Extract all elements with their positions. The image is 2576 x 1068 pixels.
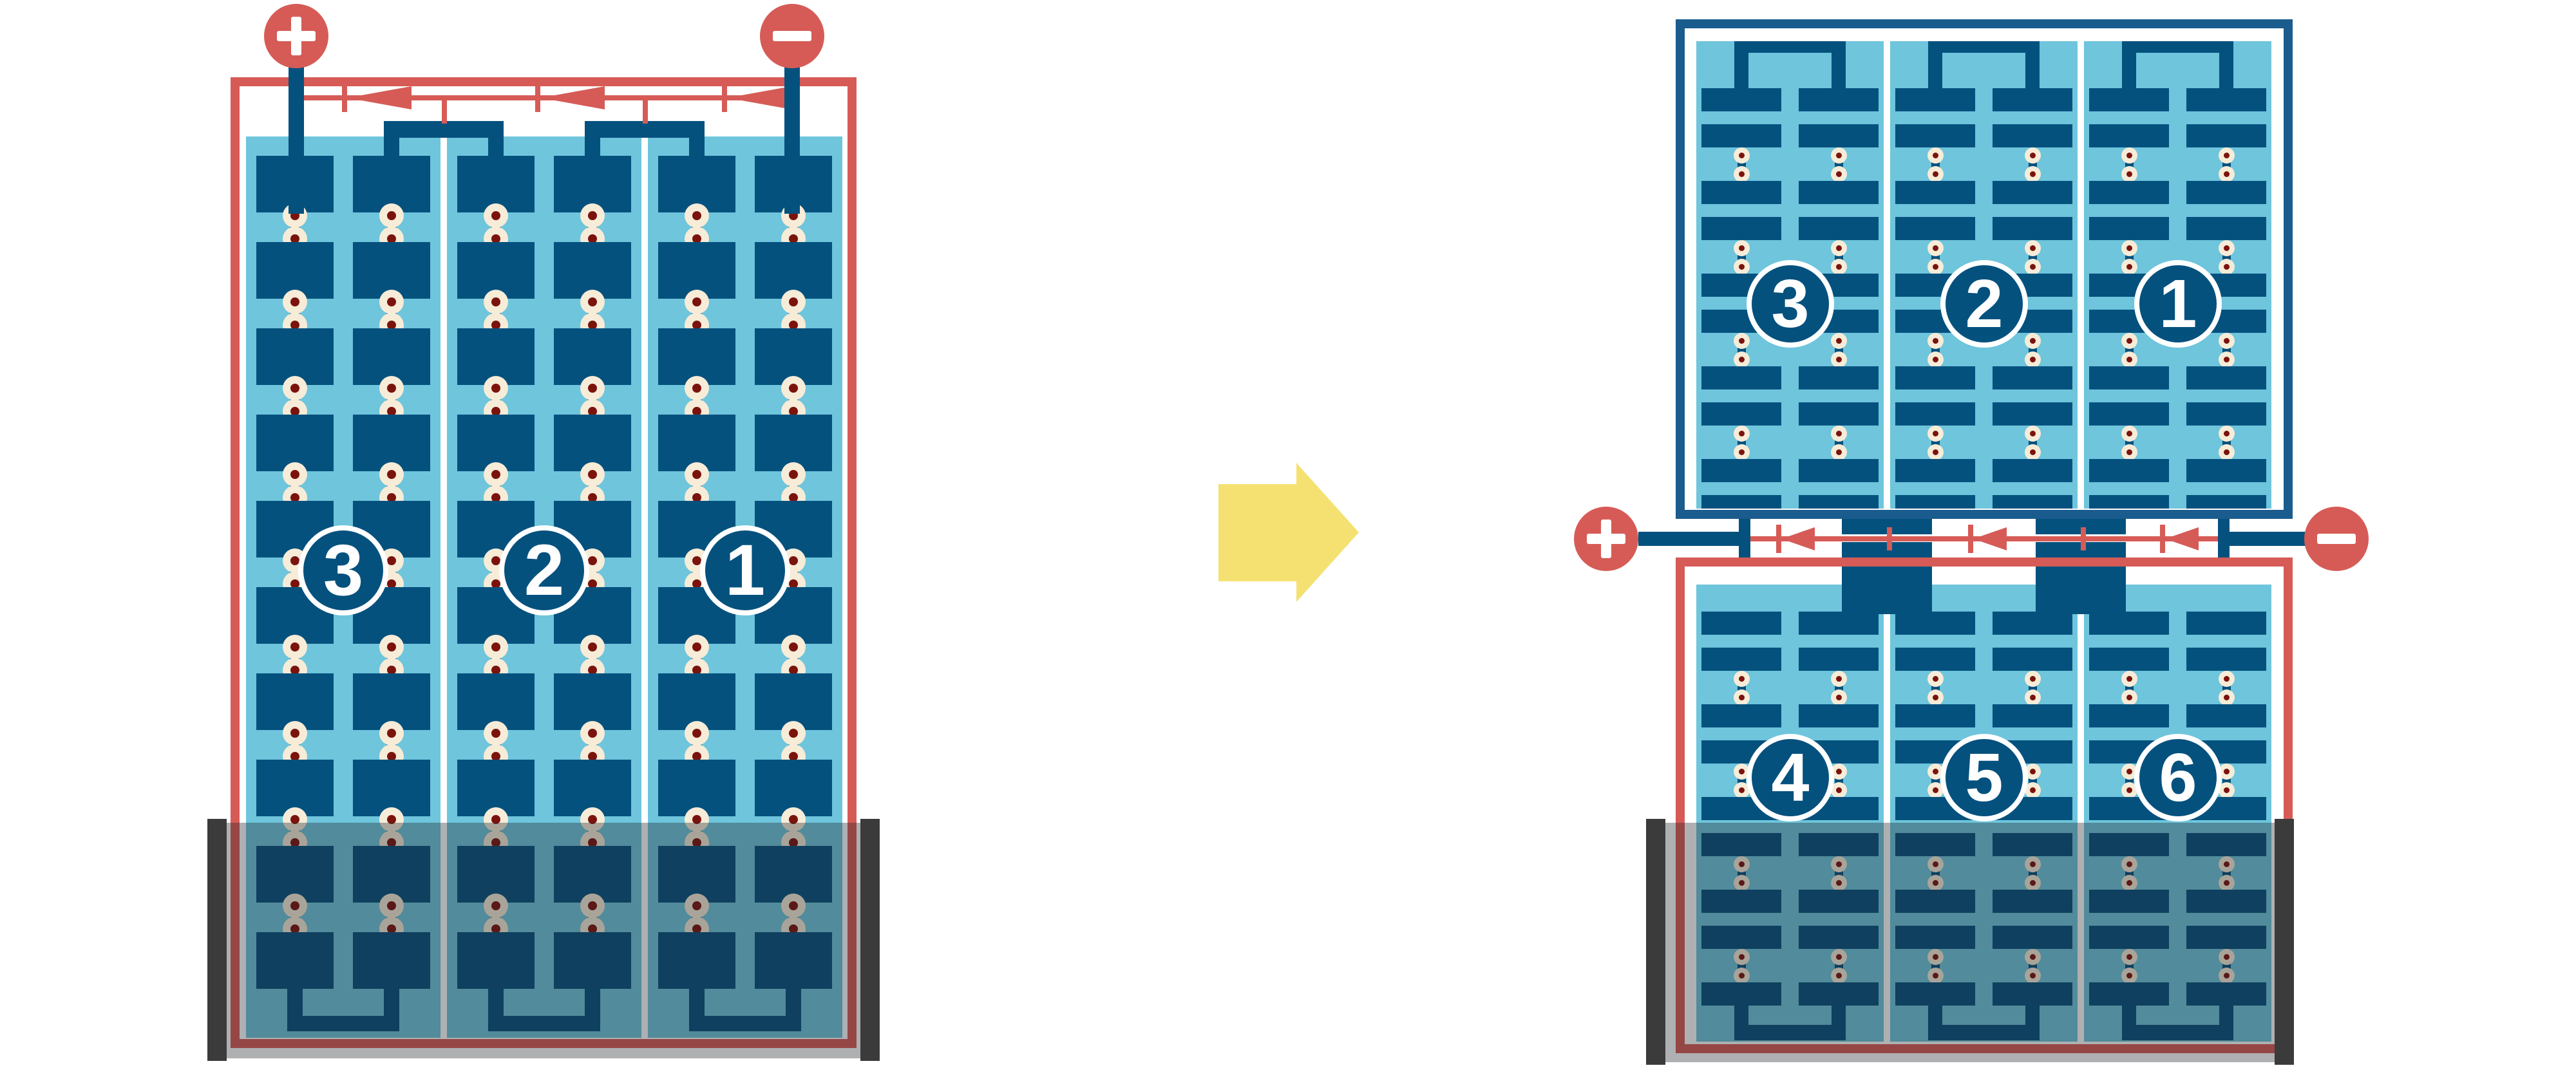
solar-half-cell (1895, 217, 1975, 240)
solder-dot-core (1739, 431, 1745, 436)
minus-terminal-icon (2304, 507, 2369, 571)
solder-dot-core (2224, 171, 2230, 177)
solder-dot (2219, 259, 2235, 275)
diode-icon (2165, 527, 2199, 550)
solder-dot (379, 462, 404, 487)
solder-dot-core (789, 297, 798, 306)
solar-half-cell (1993, 402, 2072, 426)
solar-half-cell (1701, 459, 1781, 482)
solder-dot (580, 203, 605, 228)
solder-dot (1734, 689, 1750, 706)
diode-icon (1781, 527, 1815, 550)
solder-dot-core (1836, 769, 1842, 774)
solar-module-wiring-diagram: 3 2 1 3 2 1 4 5 6 (0, 0, 2576, 1068)
solar-half-cell (1993, 459, 2072, 482)
solder-dot (781, 635, 806, 659)
solar-half-cell (1701, 612, 1781, 635)
solder-dot-core (1933, 264, 1938, 270)
solder-dot-core (1933, 449, 1938, 455)
solder-dot-core (789, 384, 798, 393)
solder-dot (2025, 240, 2041, 256)
solar-half-cell (1895, 704, 1975, 727)
string-bridge-leg (585, 138, 600, 171)
solder-dot-core (1836, 245, 1842, 251)
solar-half-cell (2186, 402, 2266, 426)
solar-half-cell (2186, 459, 2266, 482)
solder-dot (2121, 351, 2137, 368)
string-return-leg (1928, 52, 1942, 91)
solder-dot (781, 290, 806, 314)
solder-dot-core (2126, 695, 2132, 700)
solder-dot (2025, 166, 2041, 182)
solder-dot (1734, 240, 1750, 256)
solder-dot-core (2224, 338, 2230, 344)
solder-dot (2025, 351, 2041, 368)
solder-dot-core (2126, 153, 2132, 158)
string-number-badge: 2 (1940, 260, 2028, 348)
solar-half-cell (2186, 495, 2266, 509)
solar-half-cell (2089, 124, 2169, 147)
solder-dot (1927, 333, 1944, 349)
solder-dot (685, 635, 709, 659)
solder-dot-core (1836, 357, 1842, 362)
solar-half-cell (1993, 495, 2072, 509)
solder-dot-core (1933, 787, 1938, 793)
solder-dot-core (290, 470, 299, 479)
solar-half-cell (2186, 648, 2266, 671)
solder-dot-core (2126, 357, 2132, 362)
plus-terminal-icon (1574, 507, 1638, 571)
solder-dot (1734, 351, 1750, 368)
solder-dot-core (2224, 695, 2230, 700)
solder-dot-core (2126, 449, 2132, 455)
solder-dot-core (1933, 357, 1938, 362)
solder-dot-core (2030, 264, 2036, 270)
solder-dot (2121, 147, 2137, 164)
solder-dot (379, 203, 404, 228)
string-return-leg (2219, 52, 2233, 91)
solder-dot (484, 721, 508, 745)
solder-dot (2121, 426, 2137, 442)
solder-dot (1831, 426, 1847, 442)
solar-half-cell (1993, 88, 2072, 111)
solder-dot-core (1933, 245, 1938, 251)
solder-dot (1734, 444, 1750, 460)
solder-dot (2219, 147, 2235, 164)
diode-icon (1973, 527, 2007, 550)
solder-dot-core (387, 384, 396, 393)
solder-dot-core (2030, 338, 2036, 344)
solder-dot-core (2126, 769, 2132, 774)
solar-half-cell (1895, 88, 1975, 111)
solder-dot (2121, 333, 2137, 349)
solder-dot (484, 635, 508, 659)
shade-overlay (1665, 823, 2275, 1062)
solar-half-cell (2186, 612, 2266, 635)
solder-dot-core (1836, 449, 1842, 455)
solder-dot-core (2030, 695, 2036, 700)
solder-dot-core (692, 297, 701, 306)
solder-dot (2219, 240, 2235, 256)
solar-half-cell (2089, 704, 2169, 727)
solder-dot-core (2224, 769, 2230, 774)
solar-half-cell (1701, 217, 1781, 240)
solder-dot-core (2126, 245, 2132, 251)
solar-half-cell (1799, 217, 1879, 240)
solar-half-cell (1701, 648, 1781, 671)
solder-dot-core (1836, 787, 1842, 793)
solder-dot (1831, 689, 1847, 706)
solder-dot-core (2030, 676, 2036, 682)
solder-dot (781, 721, 806, 745)
solder-dot-core (2126, 787, 2132, 793)
shade-overlay (227, 823, 860, 1058)
solder-dot-core (2224, 676, 2230, 682)
solder-dot-core (387, 729, 396, 738)
negative-terminal-wire (784, 62, 800, 214)
solar-half-cell (1799, 181, 1879, 204)
diode-cathode-bar (342, 84, 347, 112)
solar-half-cell (1895, 181, 1975, 204)
solder-dot-core (1739, 449, 1745, 455)
solder-dot-core (2030, 769, 2036, 774)
solar-half-cell (2186, 217, 2266, 240)
solder-dot-core (2126, 338, 2132, 344)
solder-dot (1734, 333, 1750, 349)
solder-dot-core (588, 470, 597, 479)
solder-dot (2121, 444, 2137, 460)
solder-dot-core (1933, 338, 1938, 344)
solar-half-cell (2089, 366, 2169, 389)
solder-dot (685, 290, 709, 314)
solar-half-cell (2186, 366, 2266, 389)
right-arrow-icon (1296, 463, 1359, 602)
solar-half-cell (1701, 181, 1781, 204)
solder-dot (484, 290, 508, 314)
string-tab-leg (1842, 567, 1932, 614)
plus-sign-bar (291, 17, 301, 55)
solar-half-cell (1799, 88, 1879, 111)
solder-dot (580, 462, 605, 487)
solder-dot (1831, 147, 1847, 164)
solder-dot-core (2224, 787, 2230, 793)
solder-dot-core (2224, 449, 2230, 455)
solder-dot-core (1933, 171, 1938, 177)
diode-cathode-bar (2160, 525, 2165, 553)
solder-dot-core (789, 642, 798, 651)
minus-terminal-icon (760, 4, 824, 68)
solar-half-cell (1993, 124, 2072, 147)
plus-terminal-icon (264, 4, 328, 68)
solder-dot-core (1739, 245, 1745, 251)
solder-dot-core (2030, 153, 2036, 158)
solder-dot (379, 721, 404, 745)
solder-dot-core (1739, 357, 1745, 362)
solder-dot (2121, 689, 2137, 706)
solar-half-cell (1701, 402, 1781, 426)
solar-half-cell (1895, 648, 1975, 671)
solder-dot-core (1739, 676, 1745, 682)
solar-half-cell (2089, 495, 2169, 509)
solder-dot (2025, 689, 2041, 706)
solder-dot-core (491, 384, 500, 393)
solder-dot (283, 635, 307, 659)
solder-dot (2121, 671, 2137, 687)
solder-dot (2219, 444, 2235, 460)
solder-dot (379, 635, 404, 659)
solder-dot (379, 376, 404, 400)
solder-dot-core (1836, 676, 1842, 682)
string-return-bar (2122, 41, 2233, 53)
solar-half-cell (1993, 648, 2072, 671)
solder-dot (379, 290, 404, 314)
string-number-badge: 1 (700, 525, 790, 615)
solder-dot (1831, 351, 1847, 368)
solar-half-cell (2089, 459, 2169, 482)
shade-edge-bar (1646, 819, 1665, 1065)
solar-half-cell (1993, 181, 2072, 204)
solder-dot-core (387, 211, 396, 220)
solder-dot-core (290, 297, 299, 306)
string-return-bar (1734, 41, 1846, 53)
diode-cathode-bar (535, 84, 540, 112)
solar-half-cell (1993, 704, 2072, 727)
solder-dot (580, 635, 605, 659)
solder-dot-core (1836, 338, 1842, 344)
diode-cathode-bar (1968, 525, 1973, 553)
solder-dot-core (2030, 171, 2036, 177)
solder-dot (685, 376, 709, 400)
minus-sign-bar (773, 31, 811, 41)
solar-half-cell (2089, 402, 2169, 426)
solder-dot-core (692, 384, 701, 393)
solder-dot (1927, 351, 1944, 368)
solder-dot-core (588, 297, 597, 306)
solder-dot-core (789, 729, 798, 738)
plus-sign-bar (1601, 520, 1611, 558)
solder-dot (484, 203, 508, 228)
solder-dot (685, 462, 709, 487)
solder-dot (1927, 147, 1944, 164)
solder-dot-core (692, 211, 701, 220)
solder-dot (781, 462, 806, 487)
string-return-leg (1734, 52, 1748, 91)
string-bridge-leg (689, 138, 705, 171)
positive-terminal-wire (289, 62, 304, 214)
solder-dot-core (1836, 264, 1842, 270)
solder-dot-core (692, 642, 701, 651)
solar-half-cell (1701, 495, 1781, 509)
transform-arrow-body (1218, 484, 1296, 581)
solar-half-cell (1701, 704, 1781, 727)
solder-dot (1831, 333, 1847, 349)
solder-dot-core (2224, 153, 2230, 158)
diode-bus-tap (442, 100, 447, 124)
solder-dot-core (692, 470, 701, 479)
solder-dot (685, 721, 709, 745)
solder-dot (2219, 671, 2235, 687)
solder-dot-core (588, 642, 597, 651)
solar-half-cell (1799, 366, 1879, 389)
solder-dot-core (692, 729, 701, 738)
solder-dot (484, 376, 508, 400)
solder-dot (1927, 240, 1944, 256)
solar-half-cell (2186, 704, 2266, 727)
solder-dot-core (1739, 695, 1745, 700)
solder-dot-core (1739, 787, 1745, 793)
diode-icon (727, 86, 791, 109)
solar-half-cell (1895, 459, 1975, 482)
solder-dot-core (1933, 431, 1938, 436)
solder-dot-core (2224, 264, 2230, 270)
solar-half-cell (1799, 648, 1879, 671)
solder-dot (484, 462, 508, 487)
solder-dot-core (1739, 153, 1745, 158)
solder-dot-core (1836, 171, 1842, 177)
diode-bus-tap (2081, 527, 2086, 550)
solder-dot (580, 290, 605, 314)
solar-half-cell (1895, 402, 1975, 426)
solder-dot-core (1739, 264, 1745, 270)
string-tab-leg (2036, 567, 2126, 614)
solder-dot-core (588, 211, 597, 220)
solder-dot-core (1836, 431, 1842, 436)
string-number-badge: 4 (1747, 734, 1834, 821)
string-bridge-leg (384, 138, 399, 171)
solder-dot (1734, 426, 1750, 442)
shade-edge-bar (207, 819, 227, 1061)
solder-dot-core (290, 729, 299, 738)
solder-dot-core (1933, 153, 1938, 158)
solar-half-cell (1799, 124, 1879, 147)
solder-dot-core (588, 729, 597, 738)
string-return-leg (1832, 52, 1846, 91)
string-number-badge: 3 (1747, 260, 1834, 348)
solar-half-cell (1799, 495, 1879, 509)
solder-dot-core (2030, 245, 2036, 251)
solder-dot-core (387, 642, 396, 651)
string-return-bar (1928, 41, 2040, 53)
solder-dot (1927, 444, 1944, 460)
solder-dot (1734, 166, 1750, 182)
diode-icon (540, 86, 605, 109)
solder-dot (1927, 166, 1944, 182)
solder-dot (2219, 333, 2235, 349)
solder-dot-core (2126, 171, 2132, 177)
diode-bus-tap (1887, 527, 1892, 550)
solder-dot-core (588, 384, 597, 393)
solar-half-cell (1993, 217, 2072, 240)
solar-half-cell (1701, 124, 1781, 147)
solder-dot-core (1739, 171, 1745, 177)
solar-half-cell (1895, 495, 1975, 509)
solder-dot-core (1836, 153, 1842, 158)
solar-half-cell (1701, 88, 1781, 111)
solar-half-cell (2089, 612, 2169, 635)
solder-dot-core (387, 470, 396, 479)
solder-dot-core (1739, 338, 1745, 344)
solder-dot (580, 721, 605, 745)
solder-dot-core (491, 470, 500, 479)
solar-half-cell (1895, 612, 1975, 635)
diode-cathode-bar (1776, 525, 1781, 553)
solder-dot (2025, 147, 2041, 164)
solder-dot-core (789, 556, 798, 565)
solar-half-cell (2186, 181, 2266, 204)
solar-half-cell (1799, 704, 1879, 727)
diode-icon (347, 86, 412, 109)
solder-dot-core (1933, 676, 1938, 682)
solar-half-cell (2089, 648, 2169, 671)
solder-dot-core (2030, 787, 2036, 793)
solder-dot (2025, 426, 2041, 442)
solder-dot (2219, 166, 2235, 182)
solder-dot (2219, 351, 2235, 368)
solder-dot (283, 721, 307, 745)
solder-dot-core (2126, 431, 2132, 436)
solar-half-cell (1799, 459, 1879, 482)
solder-dot-core (789, 470, 798, 479)
solder-dot (580, 376, 605, 400)
string-number-badge: 2 (499, 525, 589, 615)
solder-dot (1927, 259, 1944, 275)
solder-dot (685, 203, 709, 228)
solder-dot (1734, 147, 1750, 164)
solder-dot (283, 376, 307, 400)
solder-dot (2219, 689, 2235, 706)
positive-terminal-wire (1638, 532, 1741, 546)
solder-dot-core (2224, 245, 2230, 251)
solder-dot-core (2224, 357, 2230, 362)
solder-dot-core (491, 642, 500, 651)
shade-edge-bar (2275, 819, 2294, 1065)
solder-dot (1927, 671, 1944, 687)
solder-dot (2025, 671, 2041, 687)
solar-half-cell (2186, 88, 2266, 111)
solder-dot (1831, 259, 1847, 275)
solder-dot-core (2030, 449, 2036, 455)
solder-dot (781, 376, 806, 400)
solder-dot-core (2030, 357, 2036, 362)
solder-dot (1927, 426, 1944, 442)
solder-dot-core (387, 556, 396, 565)
diode-bus-tap (643, 100, 648, 124)
shade-edge-bar (860, 819, 880, 1061)
solder-dot-core (290, 384, 299, 393)
solar-half-cell (1993, 366, 2072, 389)
solar-half-cell (1895, 124, 1975, 147)
solder-dot (1831, 166, 1847, 182)
solar-half-cell (2186, 124, 2266, 147)
solder-dot (283, 290, 307, 314)
solder-dot-core (491, 729, 500, 738)
solar-half-cell (1799, 612, 1879, 635)
solder-dot (1734, 259, 1750, 275)
solar-half-cell (1799, 402, 1879, 426)
solar-half-cell (1701, 366, 1781, 389)
solar-half-cell (1993, 612, 2072, 635)
string-number-badge: 6 (2134, 734, 2222, 821)
string-return-leg (2122, 52, 2136, 91)
solder-dot-core (2030, 431, 2036, 436)
solder-dot-core (2126, 264, 2132, 270)
solder-dot-core (1933, 769, 1938, 774)
solder-dot (2121, 240, 2137, 256)
solder-dot-core (290, 642, 299, 651)
string-return-leg (2025, 52, 2040, 91)
solder-dot-core (588, 556, 597, 565)
solder-dot (2025, 259, 2041, 275)
